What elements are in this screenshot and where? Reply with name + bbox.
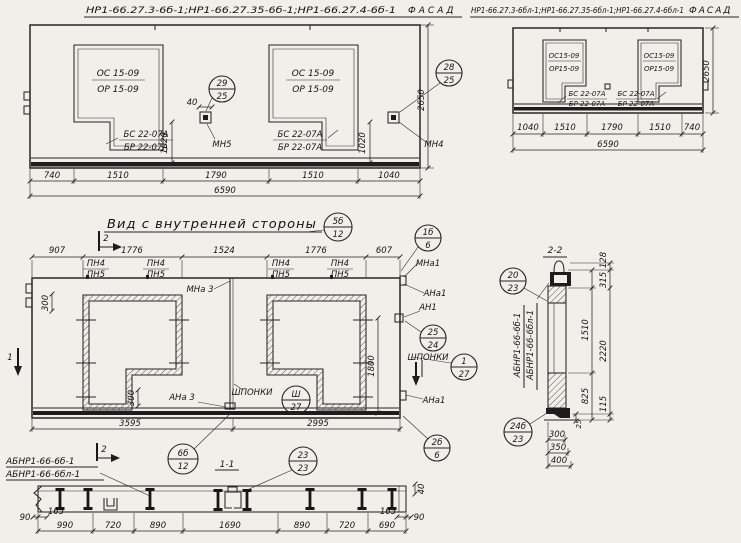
svg-text:20: 20 <box>508 271 519 281</box>
svg-text:2995: 2995 <box>307 419 329 429</box>
part-labels: АБНР1-66-6б-1 АБНР1-66-6бл-1 <box>5 457 150 496</box>
part-label-1: АБНР1-66-6б-1 <box>5 457 74 467</box>
bottom-shoe <box>546 408 570 418</box>
part-label-2: АБНР1-66-6бл-1 <box>5 470 80 480</box>
pn-plate-marks: ПН4 ПН5 ПН4 ПН5 ПН4 ПН5 ПН4 ПН5 <box>83 259 353 280</box>
edge-tab <box>24 92 30 100</box>
svg-text:720: 720 <box>339 521 355 531</box>
svg-text:2220: 2220 <box>599 340 609 362</box>
section-1-1-title: 1-1 <box>220 460 235 470</box>
callout-23-23: 23 23 <box>247 447 317 490</box>
svg-text:12: 12 <box>333 230 344 240</box>
svg-text:5б: 5б <box>333 217 344 227</box>
svg-text:ПН4: ПН4 <box>272 259 290 269</box>
facade-right-view: НР1-66.27.3-6бл-1;НР1-66.27.35-6бл-1;НР1… <box>470 6 739 153</box>
svg-text:315: 315 <box>599 272 609 288</box>
section-1-1-dims: 90 165 165 90 990 720 890 1690 890 720 6… <box>20 507 425 534</box>
section-1-1-body <box>34 486 406 512</box>
svg-text:1690: 1690 <box>219 521 241 531</box>
label-mn4: МН4 <box>424 140 443 150</box>
callout-24b-23: 24б 23 <box>504 413 547 446</box>
shponki-middle: ШПОНКИ Ш 27 <box>232 384 310 414</box>
section-2-2-right-dims: 1510 825 128 315 2220 115 25 <box>568 251 614 428</box>
sill2-mark-top: БС 22-07А <box>278 130 323 140</box>
svg-text:6: 6 <box>425 241 431 251</box>
section-mark-2-bottom: 2 <box>97 443 120 462</box>
svg-text:1776: 1776 <box>121 246 143 256</box>
section-2-2-body <box>544 261 576 420</box>
window1-mark-top: ОС 15-09 <box>97 69 140 79</box>
dim-300-bottom: 300 <box>127 390 138 406</box>
window2-mark-top: ОС 15-09 <box>292 69 335 79</box>
svg-text:1510: 1510 <box>554 123 576 133</box>
svg-text:990: 990 <box>57 521 73 531</box>
section-2-2-bottom-dims: 300 350 400 <box>548 422 571 469</box>
window2-mark-top: ОС15-09 <box>644 52 675 60</box>
drawing-sheet: НР1-66.27.3-6б-1;НР1-66.27.35-6б-1;НР1-6… <box>0 0 741 543</box>
dim-40-right: 40 <box>415 484 427 495</box>
svg-text:890: 890 <box>294 521 310 531</box>
svg-text:27: 27 <box>459 370 470 380</box>
part-label-rot-1: АБНР1-66-6б-1 <box>513 313 523 379</box>
inner-view-title: Вид с внутренней стороны <box>107 217 317 231</box>
svg-text:90: 90 <box>414 513 425 523</box>
label-an1: АН1 <box>418 303 437 313</box>
window1-mark-bottom: ОР15-09 <box>549 65 580 73</box>
svg-text:690: 690 <box>379 521 395 531</box>
dim-1020-left: 1020 <box>160 122 172 163</box>
svg-text:40: 40 <box>417 484 427 495</box>
svg-text:300: 300 <box>549 430 565 440</box>
svg-text:128: 128 <box>599 251 609 268</box>
label-mn5: МН5 <box>212 140 231 150</box>
svg-text:1510: 1510 <box>302 171 324 181</box>
svg-text:ШПОНКИ: ШПОНКИ <box>232 388 274 398</box>
svg-text:300: 300 <box>127 390 137 406</box>
callout-top: 28 <box>444 63 455 73</box>
svg-text:23: 23 <box>298 451 309 461</box>
inner-view: Вид с внутренней стороны 5б 12 2 907 177… <box>7 213 477 474</box>
svg-text:1790: 1790 <box>205 171 227 181</box>
callout-bottom: 25 <box>217 92 228 102</box>
section-1-1: 1-1 23 23 40 90 165 165 90 <box>20 447 427 534</box>
sill2-mark-bottom: БР 22-07А <box>278 143 322 153</box>
sill1-mark-bottom: БР 22-07А <box>569 100 606 108</box>
svg-text:1б: 1б <box>423 228 434 238</box>
facade-left-dim-row: 740 1510 1790 1510 1040 6590 <box>30 169 420 199</box>
section-2-2-title: 2-2 <box>548 246 563 256</box>
edge-plate <box>395 314 403 322</box>
svg-text:24: 24 <box>428 341 439 351</box>
svg-text:Ш: Ш <box>291 390 300 400</box>
callout-29-25: 29 25 <box>206 76 235 111</box>
window1-mark-top: ОС15-09 <box>549 52 580 60</box>
dim-300-top: 300 <box>41 294 52 311</box>
window2-mark-bottom: ОР 15-09 <box>292 85 334 95</box>
svg-text:1790: 1790 <box>601 123 623 133</box>
svg-text:1040: 1040 <box>378 171 400 181</box>
svg-text:25: 25 <box>575 419 583 428</box>
svg-text:1510: 1510 <box>107 171 129 181</box>
anchor-mn4: МН4 <box>388 112 444 150</box>
svg-text:12: 12 <box>178 462 189 472</box>
svg-text:3595: 3595 <box>119 419 141 429</box>
dim-total: 6590 <box>214 186 236 196</box>
window1-mark-bottom: ОР 15-09 <box>97 85 139 95</box>
joint-plate <box>605 84 610 89</box>
blueprint-canvas: НР1-66.27.3-6б-1;НР1-66.27.35-6б-1;НР1-6… <box>0 0 741 543</box>
sill2-mark-bottom: БР 22-07А <box>618 100 655 108</box>
svg-text:25: 25 <box>428 328 439 338</box>
svg-text:1800: 1800 <box>367 355 377 377</box>
svg-text:2650: 2650 <box>702 60 712 82</box>
dim-1800: 1800 <box>367 318 378 413</box>
svg-text:115: 115 <box>599 396 609 412</box>
svg-text:23: 23 <box>508 284 519 294</box>
sill2-mark-top: БС 22-07А <box>617 90 654 98</box>
facade-right-dim-row: 1040 1510 1790 1510 740 6590 <box>513 114 703 153</box>
svg-text:165: 165 <box>380 507 396 517</box>
label-mna1: МНа1 <box>416 259 440 269</box>
shponki-right: ШПОНКИ 1 27 <box>408 353 477 380</box>
section-mark-1-left: 1 <box>7 348 22 376</box>
svg-text:1040: 1040 <box>517 123 539 133</box>
svg-text:24б: 24б <box>510 422 526 432</box>
svg-text:350: 350 <box>550 443 566 453</box>
facade-left-view: НР1-66.27.3-6б-1;НР1-66.27.35-6б-1;НР1-6… <box>24 6 462 199</box>
svg-text:ПН4: ПН4 <box>147 259 165 269</box>
facade-left-facade-word: ФАСАД <box>408 6 456 16</box>
callout-bottom: 25 <box>444 76 455 86</box>
edge-tab <box>400 276 406 285</box>
svg-text:825: 825 <box>581 388 591 404</box>
svg-text:2б: 2б <box>432 438 443 448</box>
svg-text:1020: 1020 <box>358 132 368 154</box>
edge-tab <box>26 298 32 307</box>
svg-text:2: 2 <box>101 445 106 455</box>
callout-28-25: 28 25 <box>400 60 462 112</box>
callout-20-23: 20 23 <box>500 268 547 301</box>
svg-text:907: 907 <box>49 246 66 256</box>
svg-text:23: 23 <box>298 464 309 474</box>
right-edge-labels: МНа1 АНа1 АН1 АНа1 <box>404 259 446 406</box>
svg-text:400: 400 <box>551 456 567 466</box>
edge-tab <box>24 106 30 114</box>
facade-right-facade-word: ФАСАД <box>689 6 732 16</box>
sill1-mark-top: БС 22-07А <box>568 90 605 98</box>
svg-text:2: 2 <box>103 234 108 244</box>
svg-text:165: 165 <box>48 507 64 517</box>
svg-text:300: 300 <box>41 295 51 311</box>
edge-tab <box>26 284 32 293</box>
svg-text:6б: 6б <box>178 449 189 459</box>
svg-text:6: 6 <box>434 451 440 461</box>
section-2-2: 2-2 20 23 АБНР1-66-6б-1 АБНР1-66-6бл-1 <box>500 246 614 469</box>
window2-mark-bottom: ОР15-09 <box>644 65 675 73</box>
label-ana1-bottom: АНа1 <box>422 396 446 406</box>
section-mark-1-right <box>412 360 422 386</box>
svg-text:ПН4: ПН4 <box>331 259 349 269</box>
svg-text:23: 23 <box>513 435 524 445</box>
svg-text:1510: 1510 <box>649 123 671 133</box>
lifting-loop <box>554 261 564 272</box>
dim-40: 40 <box>187 98 198 108</box>
dim-total: 6590 <box>597 140 619 150</box>
dim-1020-right: 1020 <box>358 122 370 163</box>
svg-text:607: 607 <box>376 246 393 256</box>
dim-2650-right: 2650 <box>702 28 719 113</box>
svg-text:27: 27 <box>291 403 302 413</box>
svg-text:ПН4: ПН4 <box>87 259 105 269</box>
inner-bottom-dims: 3595 2995 <box>32 419 400 432</box>
svg-text:740: 740 <box>684 123 700 133</box>
svg-text:890: 890 <box>150 521 166 531</box>
svg-text:1: 1 <box>7 353 12 363</box>
svg-text:2650: 2650 <box>417 89 427 111</box>
svg-text:90: 90 <box>20 513 31 523</box>
label-mna3: МНа 3 <box>186 285 213 295</box>
svg-text:1524: 1524 <box>213 246 235 256</box>
section-mark-2-top: 2 <box>99 231 122 251</box>
callout-25-24: 25 24 <box>405 321 446 351</box>
anchor-mn5: 40 МН5 <box>187 98 232 150</box>
svg-text:1020: 1020 <box>160 132 170 154</box>
label-ana1: АНа1 <box>423 289 447 299</box>
svg-text:1510: 1510 <box>581 319 591 341</box>
facade-left-title: НР1-66.27.3-6б-1;НР1-66.27.35-6б-1;НР1-6… <box>86 6 396 16</box>
svg-text:1: 1 <box>461 357 466 367</box>
facade-right-title: НР1-66.27.3-6бл-1;НР1-66.27.35-6бл-1;НР1… <box>471 6 684 15</box>
svg-text:740: 740 <box>44 171 60 181</box>
callout-2b-6: 2б 6 <box>403 416 450 461</box>
svg-text:1776: 1776 <box>305 246 327 256</box>
inner-window-2 <box>260 295 373 410</box>
label-ana3: АНа 3 <box>168 393 195 403</box>
edge-tab <box>400 391 406 400</box>
part-label-rot-2: АБНР1-66-6бл-1 <box>526 310 536 381</box>
svg-text:720: 720 <box>105 521 121 531</box>
callout-top: 29 <box>217 79 228 89</box>
